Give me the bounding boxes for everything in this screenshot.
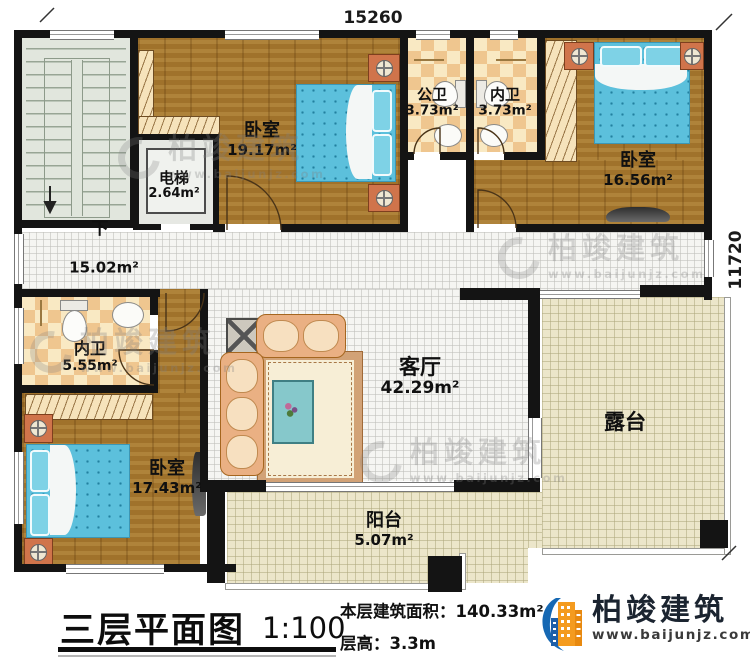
- room-name: 卧室: [603, 151, 673, 172]
- direction-text: 下: [92, 220, 109, 240]
- room-name: 客厅: [381, 355, 460, 379]
- room-area: 5.55m²: [62, 358, 117, 374]
- room-label-living-room: 客厅 42.29m²: [381, 355, 460, 399]
- room-label-terrace: 露台: [604, 410, 646, 434]
- room-label-balcony: 阳台 5.07m²: [354, 511, 413, 549]
- room-area: 42.29m²: [381, 379, 460, 399]
- door-arc: [166, 293, 204, 331]
- company-website: www.baijunjz.com: [592, 627, 750, 645]
- room-area: 15.02m²: [69, 259, 139, 276]
- dimension-right: 11720: [726, 218, 746, 302]
- room-label-inner-bath-top: 内卫 3.73m²: [478, 87, 531, 120]
- room-name: 内卫: [62, 340, 117, 358]
- door-arc: [478, 190, 516, 228]
- room-area: 2.64m²: [148, 187, 199, 202]
- room-name: 阳台: [354, 511, 413, 532]
- room-label-bedroom-top-right: 卧室 16.56m²: [603, 151, 673, 189]
- room-name: 卧室: [132, 459, 202, 480]
- room-area: 3.73m²: [405, 104, 458, 120]
- company-logo-icon: [538, 594, 584, 654]
- room-name: 露台: [604, 410, 646, 434]
- room-name: 电梯: [148, 170, 199, 187]
- room-name: 卧室: [227, 121, 297, 142]
- door-arc: [478, 128, 504, 154]
- room-label-inner-bath-left: 内卫 5.55m²: [62, 340, 117, 374]
- room-label-bedroom-top-left: 卧室 19.17m²: [227, 121, 297, 159]
- room-label-public-bath: 公卫 3.73m²: [405, 87, 458, 120]
- room-area: 19.17m²: [227, 142, 297, 159]
- room-area: 17.43m²: [132, 480, 202, 497]
- room-name: 公卫: [405, 87, 458, 104]
- dimension-top: 15260: [330, 8, 416, 28]
- door-arc: [414, 128, 440, 154]
- floor-plan-page: { "dimensions": { "top": "15260", "right…: [0, 0, 750, 664]
- door-swing-overlay: [0, 0, 750, 664]
- room-label-elevator: 电梯 2.64m²: [148, 170, 199, 202]
- room-area: 5.07m²: [354, 532, 413, 549]
- door-arc: [227, 176, 281, 230]
- corner-tick: [40, 8, 54, 22]
- stair-direction-label: 下: [92, 220, 109, 240]
- room-name: 内卫: [478, 87, 531, 104]
- company-name: 柏竣建筑: [592, 594, 750, 627]
- room-label-bedroom-bottom-left: 卧室 17.43m²: [132, 459, 202, 497]
- room-area: 16.56m²: [603, 172, 673, 189]
- corner-tick: [716, 14, 732, 30]
- corner-tick: [722, 546, 736, 560]
- room-area: 3.73m²: [478, 104, 531, 120]
- company-logo: 柏竣建筑 www.baijunjz.com: [538, 594, 750, 654]
- door-arc: [119, 350, 154, 385]
- stair-direction-arrow: [45, 186, 55, 212]
- hall-area-label: 15.02m²: [69, 259, 139, 276]
